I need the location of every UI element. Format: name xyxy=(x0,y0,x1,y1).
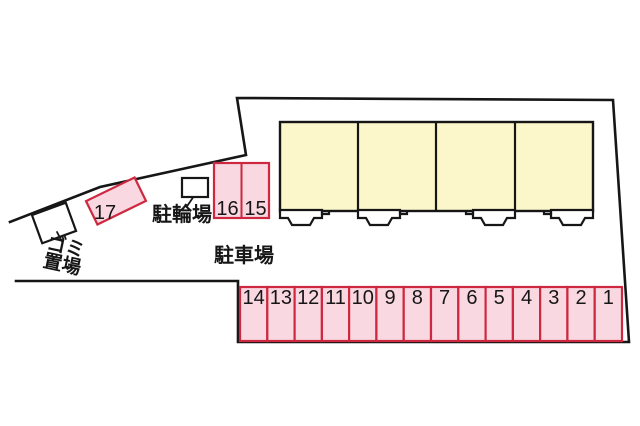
space-number-1: 1 xyxy=(603,287,614,309)
space-number-12: 12 xyxy=(297,287,319,309)
space-number-15: 15 xyxy=(244,198,266,220)
space-number-17: 17 xyxy=(94,202,116,224)
space-number-7: 7 xyxy=(439,287,450,309)
space-number-5: 5 xyxy=(494,287,505,309)
garbage-area: ゴミ 置場 xyxy=(32,203,87,280)
space-number-11: 11 xyxy=(325,287,346,309)
car-parking-label: 駐車場 xyxy=(214,243,274,267)
space-number-10: 10 xyxy=(352,287,374,309)
parking-pair-16-15: 16 15 xyxy=(214,163,269,220)
entrance-porch-3 xyxy=(473,210,515,225)
space-number-8: 8 xyxy=(412,287,423,309)
entrance-porch-2 xyxy=(358,210,400,225)
space-number-6: 6 xyxy=(466,287,477,309)
site-plan-canvas: 16 15 17 駐輪場 ゴミ 置場 駐車場 xyxy=(0,0,640,426)
entrance-porch-1 xyxy=(280,210,322,225)
building xyxy=(280,122,593,225)
site-plan-diagram: 16 15 17 駐輪場 ゴミ 置場 駐車場 xyxy=(0,0,640,426)
bicycle-parking-label: 駐輪場 xyxy=(152,202,212,226)
space-number-14: 14 xyxy=(242,287,264,309)
bicycle-parking-shape xyxy=(182,178,208,197)
space-number-16: 16 xyxy=(216,198,238,220)
bicycle-parking: 駐輪場 xyxy=(152,178,212,226)
space-number-2: 2 xyxy=(575,287,586,309)
space-number-13: 13 xyxy=(270,287,292,309)
space-number-3: 3 xyxy=(548,287,559,309)
entrance-porch-4 xyxy=(551,210,593,225)
parking-row: 14 13 12 11 10 9 8 7 6 5 4 3 2 1 xyxy=(240,287,622,341)
space-number-9: 9 xyxy=(384,287,395,309)
space-number-4: 4 xyxy=(521,287,532,309)
